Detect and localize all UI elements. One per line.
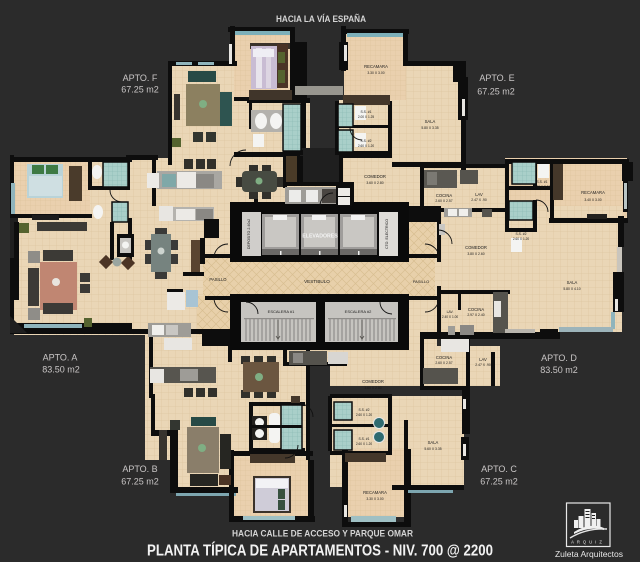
svg-text:PASILLO: PASILLO — [413, 279, 429, 284]
svg-text:ARQUIZ: ARQUIZ — [571, 540, 605, 545]
svg-text:RECAMARA: RECAMARA — [581, 190, 605, 195]
svg-text:ESCALERA #2: ESCALERA #2 — [345, 309, 372, 314]
svg-text:SALA: SALA — [425, 119, 436, 124]
svg-text:HACIA LA VÍA ESPAÑA: HACIA LA VÍA ESPAÑA — [276, 14, 366, 25]
svg-text:PLANTA TÍPICA DE APARTAMENTOS: PLANTA TÍPICA DE APARTAMENTOS - NIV. 700… — [147, 543, 493, 560]
svg-text:APTO. B: APTO. B — [122, 464, 157, 474]
svg-text:VESTIBULO: VESTIBULO — [304, 279, 330, 284]
svg-text:CTO. ELECTRICO: CTO. ELECTRICO — [385, 219, 389, 249]
svg-text:2.60 X 2.57: 2.60 X 2.57 — [435, 199, 452, 203]
svg-text:2.97 X 2.40: 2.97 X 2.40 — [467, 313, 484, 317]
svg-text:S.S. #1: S.S. #1 — [358, 437, 369, 441]
svg-text:5.80 X 3.35: 5.80 X 3.35 — [421, 126, 438, 130]
svg-text:COMEDOR: COMEDOR — [465, 245, 487, 250]
svg-text:5.80 X 4.10: 5.80 X 4.10 — [563, 287, 580, 291]
svg-text:2.60 X 1.20: 2.60 X 1.20 — [358, 144, 375, 148]
svg-text:5.60 X 3.35: 5.60 X 3.35 — [424, 447, 441, 451]
svg-text:LAV: LAV — [475, 192, 483, 197]
svg-text:2.60 X 1.20: 2.60 X 1.20 — [513, 237, 530, 241]
svg-text:3.60 X 2.80: 3.60 X 2.80 — [364, 386, 381, 390]
svg-text:ELEVADORES: ELEVADORES — [302, 234, 338, 240]
svg-text:APTO. F: APTO. F — [123, 73, 158, 83]
svg-text:2.20 X 2.00: 2.20 X 2.00 — [534, 185, 551, 189]
svg-text:APTO. D: APTO. D — [541, 353, 577, 363]
svg-text:SALA: SALA — [567, 280, 578, 285]
svg-text:2.60 X 1.20: 2.60 X 1.20 — [356, 413, 373, 417]
svg-text:COCINA: COCINA — [436, 193, 452, 198]
svg-text:3.60 X 2.80: 3.60 X 2.80 — [366, 181, 383, 185]
svg-text:S.S. #1: S.S. #1 — [536, 180, 547, 184]
svg-text:ESCALERA #1: ESCALERA #1 — [268, 309, 295, 314]
svg-text:COCINA: COCINA — [436, 355, 452, 360]
svg-text:Zuleta Arquitectos: Zuleta Arquitectos — [555, 549, 623, 559]
svg-text:SALA: SALA — [428, 440, 439, 445]
svg-text:S.S. #2: S.S. #2 — [515, 232, 526, 236]
svg-text:83.50 m2: 83.50 m2 — [42, 365, 80, 375]
svg-text:67.25 m2: 67.25 m2 — [480, 477, 518, 487]
svg-text:RECAMARA: RECAMARA — [364, 64, 388, 69]
svg-text:S.S. #2: S.S. #2 — [358, 408, 369, 412]
svg-text:3.30 X 3.00: 3.30 X 3.00 — [366, 497, 383, 501]
svg-text:COMEDOR: COMEDOR — [364, 174, 386, 179]
svg-text:3.80 X 2.60: 3.80 X 2.60 — [467, 252, 484, 256]
svg-text:2.47 X .90: 2.47 X .90 — [471, 198, 487, 202]
svg-text:S.S. #2: S.S. #2 — [360, 139, 371, 143]
svg-text:COMEDOR: COMEDOR — [362, 379, 384, 384]
svg-text:S.S. #1: S.S. #1 — [360, 110, 371, 114]
svg-text:APTO. C: APTO. C — [481, 464, 517, 474]
svg-text:2.47 X .90: 2.47 X .90 — [475, 363, 491, 367]
svg-text:COCINA: COCINA — [468, 307, 484, 312]
svg-text:LAV: LAV — [479, 357, 487, 362]
svg-text:83.50 m2: 83.50 m2 — [540, 365, 578, 375]
svg-text:3.30 X 3.00: 3.30 X 3.00 — [367, 71, 384, 75]
svg-text:2.60 X 2.57: 2.60 X 2.57 — [435, 361, 452, 365]
svg-text:2.00 X 1.25: 2.00 X 1.25 — [358, 115, 375, 119]
svg-text:DEPOSITO 2.40x2: DEPOSITO 2.40x2 — [247, 219, 251, 249]
svg-text:LAV.: LAV. — [447, 310, 454, 314]
svg-text:67.25 m2: 67.25 m2 — [121, 85, 159, 95]
svg-text:2.60 X 1.20: 2.60 X 1.20 — [356, 442, 373, 446]
svg-text:3.40 X 3.00: 3.40 X 3.00 — [584, 198, 601, 202]
svg-text:APTO. E: APTO. E — [479, 73, 514, 83]
svg-text:2.40 X 1.00: 2.40 X 1.00 — [442, 315, 459, 319]
svg-text:APTO. A: APTO. A — [43, 353, 78, 363]
svg-text:67.25 m2: 67.25 m2 — [121, 477, 159, 487]
svg-text:RECAMARA: RECAMARA — [363, 490, 387, 495]
svg-text:67.25 m2: 67.25 m2 — [477, 87, 515, 97]
svg-text:PASILLO: PASILLO — [209, 277, 227, 282]
svg-text:HACIA CALLE DE ACCESO Y PARQUE: HACIA CALLE DE ACCESO Y PARQUE OMAR — [232, 529, 413, 540]
